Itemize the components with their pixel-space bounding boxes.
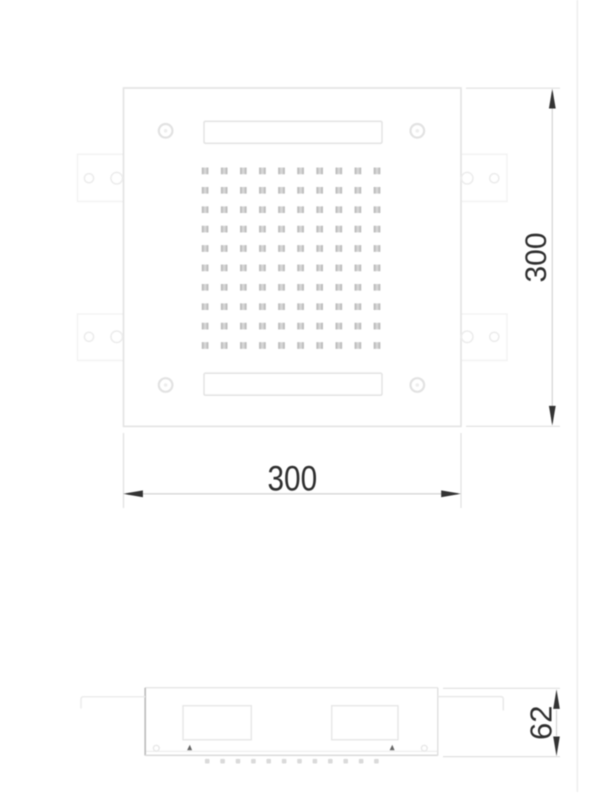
svg-text:62: 62 [524,706,559,740]
svg-text:300: 300 [520,232,553,282]
svg-text:300: 300 [267,459,317,498]
